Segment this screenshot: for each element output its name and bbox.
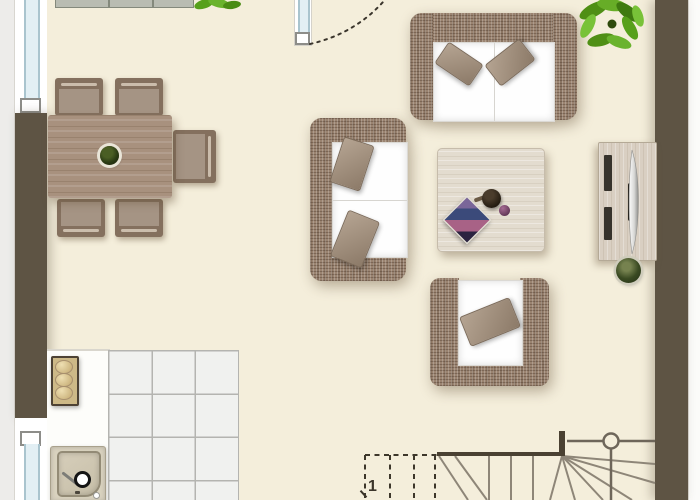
table-centerpiece-bowl: [100, 146, 119, 165]
wicker-armchair: [430, 278, 549, 386]
coffee-table: [437, 148, 545, 252]
chair-seat: [119, 89, 159, 113]
chair-seat: [119, 202, 159, 226]
wicker-sofa-horizontal: [410, 13, 577, 120]
window-left-bottom-frame: [15, 418, 47, 500]
sink-knob: [93, 492, 100, 499]
cabinet-divider: [152, 0, 154, 7]
stair-newel-bar: [559, 431, 565, 456]
burner: [55, 360, 73, 374]
cabinet-divider: [108, 0, 110, 7]
window-end-cap: [20, 98, 41, 113]
door-swing-arc: [300, 0, 400, 50]
dining-chair: [115, 199, 163, 237]
chair-backrest: [121, 83, 157, 86]
sofa-armrest-top: [310, 118, 406, 143]
kitchen-sink: [50, 446, 106, 500]
sofa-armrest-left: [410, 13, 433, 120]
top-wall-cabinet: [55, 0, 194, 8]
floor-plan: 1: [0, 0, 700, 500]
burner: [55, 386, 73, 400]
outside-margin-right: [688, 0, 700, 500]
chair-backrest: [208, 136, 211, 177]
dining-chair: [173, 130, 216, 183]
stair-treads: [439, 456, 655, 500]
chair-seat: [176, 134, 205, 179]
flatscreen-tv: [599, 143, 656, 260]
cushion-divider: [333, 200, 407, 201]
dining-chair: [57, 199, 105, 237]
burner: [55, 373, 73, 387]
chair-backrest: [121, 229, 157, 232]
cushion-divider: [494, 43, 495, 121]
decor-bowl: [482, 189, 501, 208]
kitchen-tiled-floor: [108, 350, 239, 500]
wall-left: [15, 113, 47, 418]
sofa-backrest: [410, 13, 577, 43]
floor-plant-pot: [616, 258, 641, 283]
window-left-bottom-glass: [24, 444, 40, 500]
tv-sideboard: [598, 142, 657, 261]
window-left-top-frame: [15, 0, 47, 113]
chair-seat: [61, 202, 101, 226]
dining-chair: [115, 78, 163, 116]
cooktop: [51, 356, 79, 406]
winder-staircase: [340, 425, 688, 500]
chair-seat: [59, 89, 99, 113]
potted-plant-large: [570, 0, 655, 58]
faucet-ring: [74, 471, 91, 488]
chair-backrest: [63, 229, 99, 232]
decor-berry: [499, 205, 510, 216]
stair-step-number: 1: [368, 478, 377, 496]
sink-drain: [75, 491, 80, 494]
wicker-sofa-vertical: [310, 118, 406, 281]
outside-margin-left: [0, 0, 15, 500]
dining-chair: [55, 78, 103, 116]
dining-table: [48, 115, 172, 198]
window-left-top-glass: [24, 0, 40, 99]
chair-backrest: [61, 83, 97, 86]
potted-plant-small: [192, 0, 244, 15]
